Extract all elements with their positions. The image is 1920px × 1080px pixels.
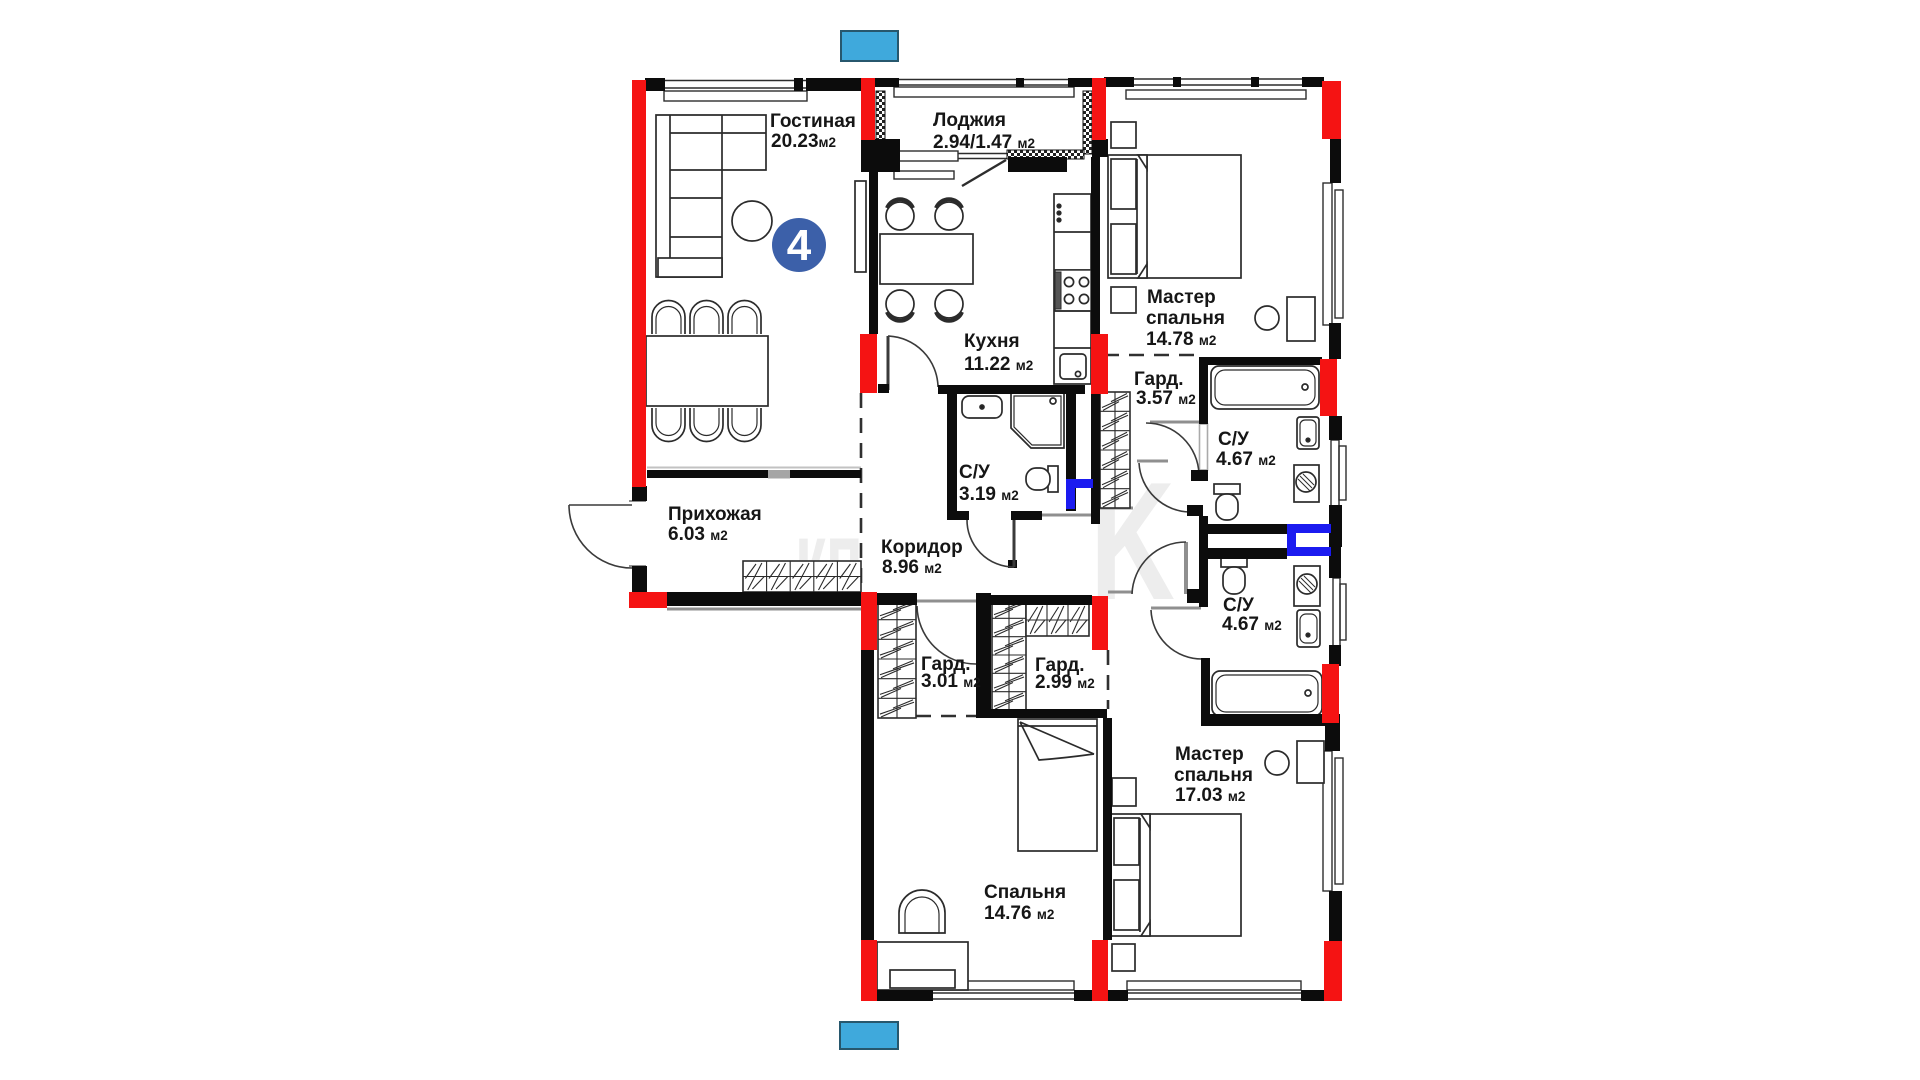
svg-text:3.01 м2: 3.01 м2	[921, 671, 981, 692]
svg-text:3.57 м2: 3.57 м2	[1136, 388, 1196, 409]
svg-text:С/У: С/У	[959, 462, 990, 483]
svg-text:14.76 м2: 14.76 м2	[984, 903, 1054, 924]
svg-text:3.19 м2: 3.19 м2	[959, 484, 1019, 505]
svg-text:Мастер: Мастер	[1147, 287, 1216, 308]
svg-text:Гостиная: Гостиная	[770, 111, 856, 132]
svg-text:6.03 м2: 6.03 м2	[668, 524, 728, 545]
svg-text:11.22 м2: 11.22 м2	[964, 354, 1033, 375]
svg-text:Лоджия: Лоджия	[933, 110, 1006, 131]
svg-text:Кухня: Кухня	[964, 331, 1020, 352]
svg-text:Спальня: Спальня	[984, 882, 1066, 903]
svg-text:20.23м2: 20.23м2	[771, 131, 836, 152]
svg-text:8.96 м2: 8.96 м2	[882, 557, 942, 578]
svg-text:С/У: С/У	[1223, 595, 1254, 616]
svg-text:спальня: спальня	[1146, 308, 1225, 329]
svg-text:4.67 м2: 4.67 м2	[1216, 449, 1276, 470]
svg-text:Гард.: Гард.	[1134, 369, 1184, 390]
svg-text:2.94/1.47 м2: 2.94/1.47 м2	[933, 132, 1035, 153]
svg-text:17.03 м2: 17.03 м2	[1175, 785, 1245, 806]
svg-text:4.67 м2: 4.67 м2	[1222, 614, 1282, 635]
svg-text:спальня: спальня	[1174, 765, 1253, 786]
svg-text:Прихожая: Прихожая	[668, 504, 762, 525]
svg-text:4: 4	[787, 221, 812, 270]
svg-text:Коридор: Коридор	[881, 537, 963, 558]
svg-text:Мастер: Мастер	[1175, 744, 1244, 765]
svg-text:14.78 м2: 14.78 м2	[1146, 329, 1216, 350]
svg-text:2.99 м2: 2.99 м2	[1035, 672, 1095, 693]
svg-text:С/У: С/У	[1218, 429, 1249, 450]
